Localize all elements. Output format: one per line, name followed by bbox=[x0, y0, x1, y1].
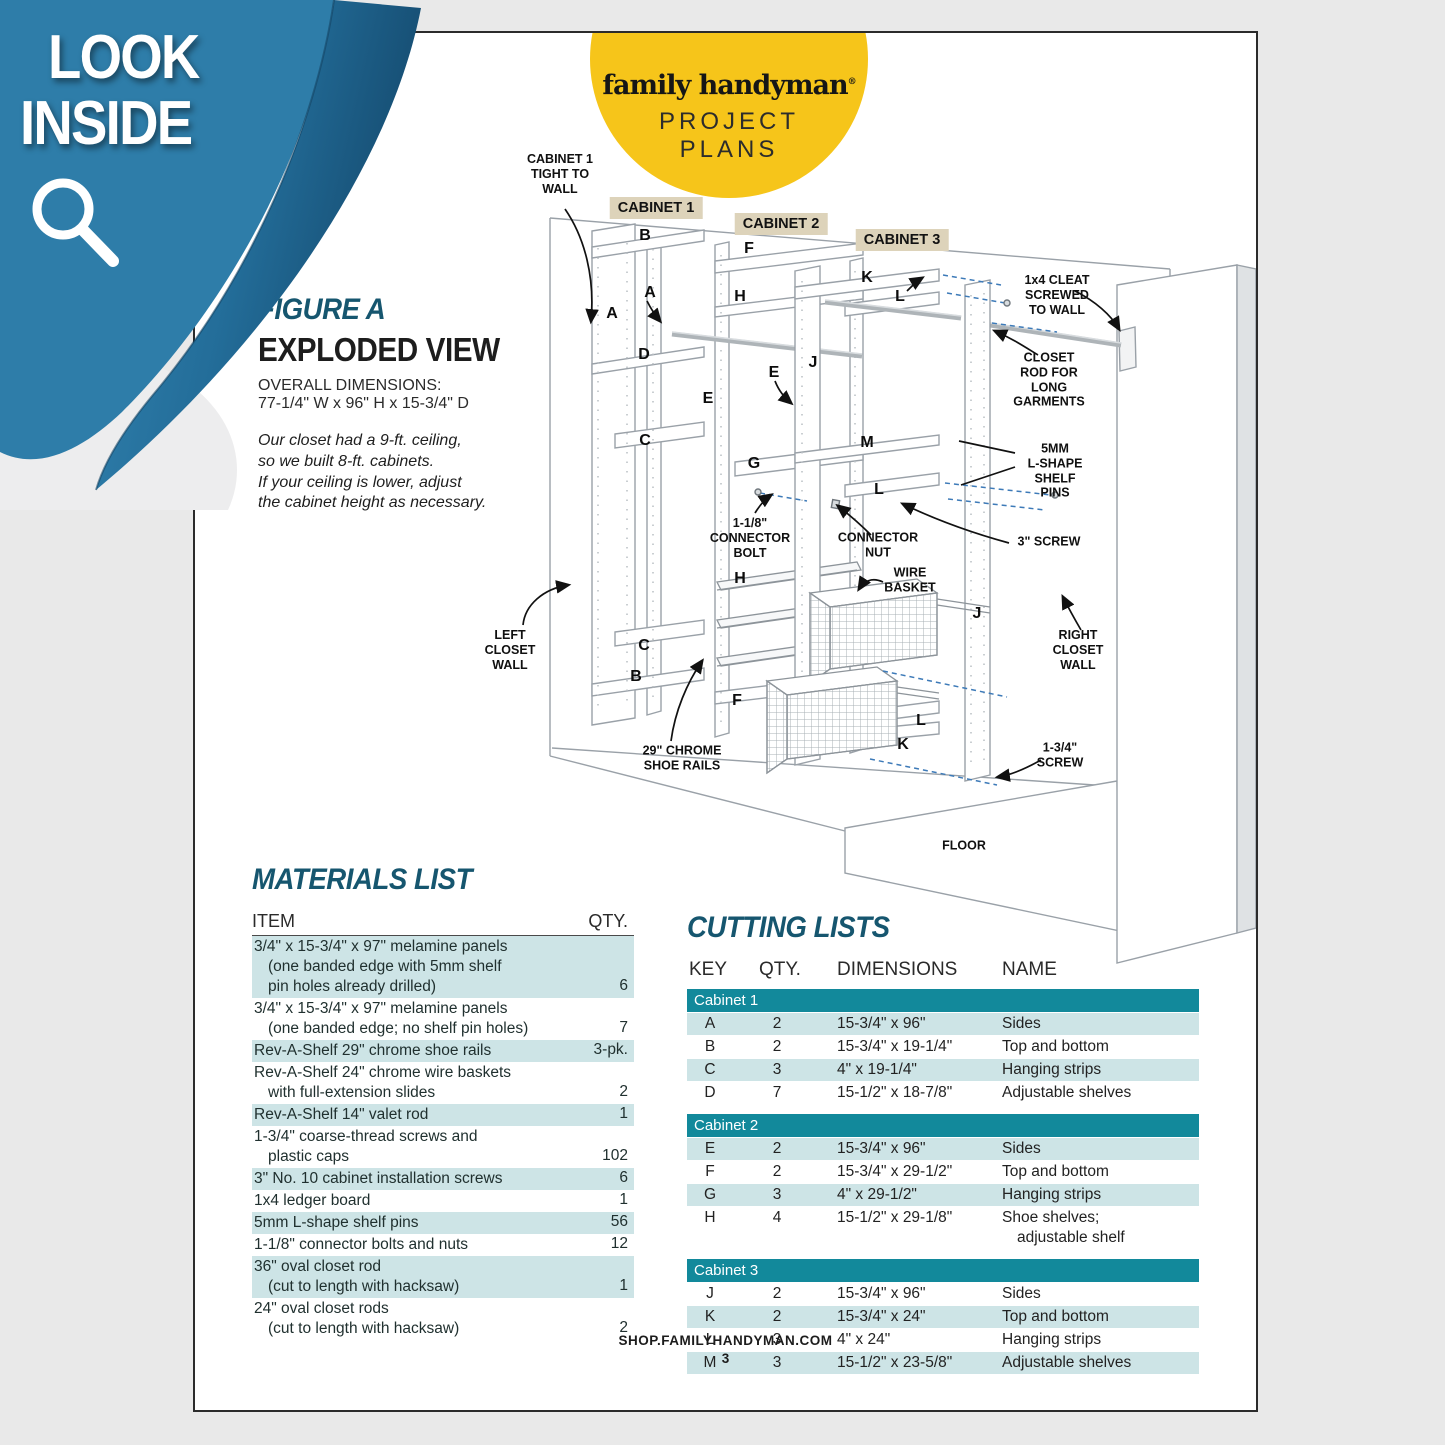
cutting-key: G bbox=[695, 1185, 725, 1205]
materials-item-line: Rev-A-Shelf 24" chrome wire baskets bbox=[252, 1063, 634, 1083]
cutting-name: Hanging strips bbox=[1002, 1185, 1101, 1205]
cutting-key: K bbox=[695, 1307, 725, 1327]
materials-header: ITEM QTY. bbox=[252, 911, 634, 936]
cutting-dimensions: 15-3/4" x 96" bbox=[837, 1284, 926, 1304]
part-letter: K bbox=[897, 736, 909, 754]
materials-qty: 102 bbox=[602, 1146, 628, 1166]
cutting-dimensions: 15-3/4" x 96" bbox=[837, 1014, 926, 1034]
materials-item-line: 1-3/4" coarse-thread screws and bbox=[252, 1127, 634, 1147]
materials-row: 1x4 ledger board1 bbox=[252, 1190, 634, 1212]
materials-item-line: 1-1/8" connector bolts and nuts bbox=[252, 1235, 634, 1255]
part-letter: C bbox=[638, 637, 650, 655]
cutting-qty: 7 bbox=[759, 1083, 795, 1103]
cutting-col-qty: QTY. bbox=[759, 959, 801, 981]
materials-item-line: (one banded edge with 5mm shelf bbox=[252, 957, 634, 977]
cutting-key: B bbox=[695, 1037, 725, 1057]
diagram-callout: 1-1/8"CONNECTORBOLT bbox=[710, 516, 790, 560]
cutting-qty: 2 bbox=[759, 1162, 795, 1182]
cutting-header: KEY QTY. DIMENSIONS NAME bbox=[687, 959, 1199, 985]
cutting-title: CUTTING LISTS bbox=[687, 911, 1158, 945]
part-letter: H bbox=[734, 570, 746, 588]
diagram-callout: 3" SCREW bbox=[1018, 535, 1081, 550]
cutting-key: D bbox=[695, 1083, 725, 1103]
materials-row: 36" oval closet rod(cut to length with h… bbox=[252, 1256, 634, 1298]
cutting-key: J bbox=[695, 1284, 725, 1304]
diagram-callout: 29" CHROMESHOE RAILS bbox=[643, 743, 722, 773]
cutting-qty: 3 bbox=[759, 1185, 795, 1205]
materials-qty: 56 bbox=[611, 1212, 628, 1232]
part-letter: E bbox=[769, 364, 780, 382]
part-letter: F bbox=[744, 240, 754, 258]
cutting-qty: 2 bbox=[759, 1284, 795, 1304]
cutting-dimensions: 15-1/2" x 29-1/8" bbox=[837, 1208, 952, 1228]
part-letter: F bbox=[732, 692, 742, 710]
cutting-name: Top and bottom bbox=[1002, 1037, 1109, 1057]
floor-label: FLOOR bbox=[942, 839, 986, 854]
materials-qty: 6 bbox=[619, 1168, 628, 1188]
cutting-row: H415-1/2" x 29-1/8"Shoe shelves;adjustab… bbox=[687, 1207, 1199, 1249]
materials-list: MATERIALS LIST ITEM QTY. 3/4" x 15-3/4" … bbox=[252, 863, 634, 1340]
cutting-qty: 2 bbox=[759, 1037, 795, 1057]
materials-qty: 1 bbox=[619, 1190, 628, 1210]
part-letter: J bbox=[973, 605, 982, 623]
part-letter: M bbox=[860, 434, 873, 452]
materials-item-line: 24" oval closet rods bbox=[252, 1299, 634, 1319]
diagram-callout: 5MML-SHAPESHELFPINS bbox=[1028, 442, 1083, 501]
materials-row: 3" No. 10 cabinet installation screws6 bbox=[252, 1168, 634, 1190]
part-letter: J bbox=[809, 354, 818, 372]
materials-row: Rev-A-Shelf 29" chrome shoe rails3-pk. bbox=[252, 1040, 634, 1062]
diagram-callout: LEFTCLOSETWALL bbox=[485, 628, 536, 672]
materials-item-line: pin holes already drilled) bbox=[252, 977, 634, 997]
diagram-callout: WIREBASKET bbox=[884, 565, 935, 595]
part-letter: B bbox=[639, 227, 651, 245]
cutting-dimensions: 4" x 19-1/4" bbox=[837, 1060, 917, 1080]
materials-row: 3/4" x 15-3/4" x 97" melamine panels(one… bbox=[252, 936, 634, 998]
banner-word-inside: INSIDE bbox=[20, 88, 191, 159]
materials-qty: 1 bbox=[619, 1276, 628, 1296]
cutting-qty: 4 bbox=[759, 1208, 795, 1228]
part-letter: L bbox=[895, 288, 905, 306]
cutting-qty: 2 bbox=[759, 1307, 795, 1327]
materials-item-line: (cut to length with hacksaw) bbox=[252, 1277, 634, 1297]
cutting-row: F215-3/4" x 29-1/2"Top and bottom bbox=[687, 1161, 1199, 1183]
cutting-name: Top and bottom bbox=[1002, 1162, 1109, 1182]
part-letter: K bbox=[861, 269, 873, 287]
part-letter: D bbox=[638, 346, 650, 364]
materials-qty: 3-pk. bbox=[594, 1040, 628, 1060]
materials-qty: 12 bbox=[611, 1234, 628, 1254]
diagram-callout: RIGHTCLOSETWALL bbox=[1053, 628, 1104, 672]
materials-item-line: 3/4" x 15-3/4" x 97" melamine panels bbox=[252, 999, 634, 1019]
cutting-row: B215-3/4" x 19-1/4"Top and bottom bbox=[687, 1036, 1199, 1058]
part-letter: L bbox=[916, 712, 926, 730]
materials-title: MATERIALS LIST bbox=[252, 863, 603, 897]
cutting-lists: CUTTING LISTS KEY QTY. DIMENSIONS NAME C… bbox=[687, 911, 1199, 1374]
materials-item-line: 3/4" x 15-3/4" x 97" melamine panels bbox=[252, 937, 634, 957]
cabinet-tag: CABINET 1 bbox=[610, 197, 703, 219]
cutting-name: Sides bbox=[1002, 1284, 1041, 1304]
materials-item-line: plastic caps bbox=[252, 1147, 634, 1167]
banner-word-look: LOOK bbox=[48, 22, 199, 93]
cutting-key: E bbox=[695, 1139, 725, 1159]
diagram-callout: 1x4 CLEATSCREWEDTO WALL bbox=[1024, 273, 1089, 317]
cutting-row: C34" x 19-1/4"Hanging strips bbox=[687, 1059, 1199, 1081]
materials-col-qty: QTY. bbox=[588, 911, 628, 932]
cutting-section-band: Cabinet 1 bbox=[687, 989, 1199, 1012]
cutting-key: F bbox=[695, 1162, 725, 1182]
cutting-key: H bbox=[695, 1208, 725, 1228]
cutting-row: G34" x 29-1/2"Hanging strips bbox=[687, 1184, 1199, 1206]
cutting-col-name: NAME bbox=[1002, 959, 1057, 981]
cutting-qty: 2 bbox=[759, 1014, 795, 1034]
cutting-dimensions: 15-3/4" x 24" bbox=[837, 1307, 926, 1327]
materials-rows: 3/4" x 15-3/4" x 97" melamine panels(one… bbox=[252, 936, 634, 1340]
diagram-callout: 1-3/4"SCREW bbox=[1037, 740, 1084, 770]
cabinet-tag: CABINET 2 bbox=[735, 213, 828, 235]
materials-row: Rev-A-Shelf 14" valet rod1 bbox=[252, 1104, 634, 1126]
cutting-name: Hanging strips bbox=[1002, 1060, 1101, 1080]
page-footer: SHOP.FAMILYHANDYMAN.COM 3 bbox=[195, 1333, 1256, 1366]
cutting-name: Sides bbox=[1002, 1014, 1041, 1034]
part-letter: A bbox=[606, 305, 618, 323]
cutting-name: Shoe shelves;adjustable shelf bbox=[1002, 1208, 1125, 1248]
materials-item-line: 1x4 ledger board bbox=[252, 1191, 634, 1211]
cutting-row: E215-3/4" x 96"Sides bbox=[687, 1138, 1199, 1160]
part-letter: G bbox=[748, 455, 760, 473]
materials-item-line: with full-extension slides bbox=[252, 1083, 634, 1103]
cutting-key: A bbox=[695, 1014, 725, 1034]
cutting-col-dimensions: DIMENSIONS bbox=[837, 959, 957, 981]
materials-item-line: 36" oval closet rod bbox=[252, 1257, 634, 1277]
cutting-row: A215-3/4" x 96"Sides bbox=[687, 1013, 1199, 1035]
materials-item-line: Rev-A-Shelf 14" valet rod bbox=[252, 1105, 634, 1125]
part-letter: C bbox=[639, 432, 651, 450]
cutting-row: K215-3/4" x 24"Top and bottom bbox=[687, 1306, 1199, 1328]
diagram-callout: CLOSETROD FORLONGGARMENTS bbox=[1013, 351, 1085, 410]
materials-item-line: 3" No. 10 cabinet installation screws bbox=[252, 1169, 634, 1189]
cutting-dimensions: 15-3/4" x 19-1/4" bbox=[837, 1037, 952, 1057]
materials-item-line: Rev-A-Shelf 29" chrome shoe rails bbox=[252, 1041, 634, 1061]
materials-col-item: ITEM bbox=[252, 911, 295, 931]
part-letter: B bbox=[630, 668, 642, 686]
cutting-key: C bbox=[695, 1060, 725, 1080]
cutting-col-key: KEY bbox=[689, 959, 727, 981]
footer-page-number: 3 bbox=[195, 1351, 1256, 1366]
cutting-name: Top and bottom bbox=[1002, 1307, 1109, 1327]
footer-site: SHOP.FAMILYHANDYMAN.COM bbox=[195, 1333, 1256, 1348]
cutting-row: D715-1/2" x 18-7/8"Adjustable shelves bbox=[687, 1082, 1199, 1104]
materials-row: Rev-A-Shelf 24" chrome wire basketswith … bbox=[252, 1062, 634, 1104]
materials-qty: 7 bbox=[619, 1018, 628, 1038]
look-inside-banner[interactable]: LOOK INSIDE bbox=[0, 0, 480, 510]
cutting-name: Sides bbox=[1002, 1139, 1041, 1159]
diagram-callout: CABINET 1TIGHT TOWALL bbox=[527, 152, 593, 196]
cutting-section-band: Cabinet 2 bbox=[687, 1114, 1199, 1137]
materials-row: 1-1/8" connector bolts and nuts12 bbox=[252, 1234, 634, 1256]
materials-qty: 6 bbox=[619, 976, 628, 996]
cutting-qty: 3 bbox=[759, 1060, 795, 1080]
part-letter: L bbox=[874, 481, 884, 499]
materials-row: 3/4" x 15-3/4" x 97" melamine panels(one… bbox=[252, 998, 634, 1040]
cutting-section-band: Cabinet 3 bbox=[687, 1259, 1199, 1282]
part-letter: E bbox=[703, 390, 714, 408]
cutting-dimensions: 15-1/2" x 18-7/8" bbox=[837, 1083, 952, 1103]
part-letter: A bbox=[644, 284, 656, 302]
materials-item-line: (one banded edge; no shelf pin holes) bbox=[252, 1019, 634, 1039]
canvas: family handyman® PROJECT PLANS bbox=[0, 0, 1445, 1445]
materials-row: 1-3/4" coarse-thread screws andplastic c… bbox=[252, 1126, 634, 1168]
cutting-name: Adjustable shelves bbox=[1002, 1083, 1131, 1103]
cutting-dimensions: 4" x 29-1/2" bbox=[837, 1185, 917, 1205]
materials-qty: 2 bbox=[619, 1082, 628, 1102]
part-letter: H bbox=[734, 288, 746, 306]
materials-row: 5mm L-shape shelf pins56 bbox=[252, 1212, 634, 1234]
cutting-row: J215-3/4" x 96"Sides bbox=[687, 1283, 1199, 1305]
cutting-qty: 2 bbox=[759, 1139, 795, 1159]
materials-qty: 1 bbox=[619, 1104, 628, 1124]
materials-item-line: 5mm L-shape shelf pins bbox=[252, 1213, 634, 1233]
cutting-dimensions: 15-3/4" x 29-1/2" bbox=[837, 1162, 952, 1182]
cabinet-tag: CABINET 3 bbox=[856, 229, 949, 251]
cutting-dimensions: 15-3/4" x 96" bbox=[837, 1139, 926, 1159]
cutting-body: Cabinet 1A215-3/4" x 96"SidesB215-3/4" x… bbox=[687, 989, 1199, 1374]
diagram-callout: CONNECTORNUT bbox=[838, 530, 918, 560]
